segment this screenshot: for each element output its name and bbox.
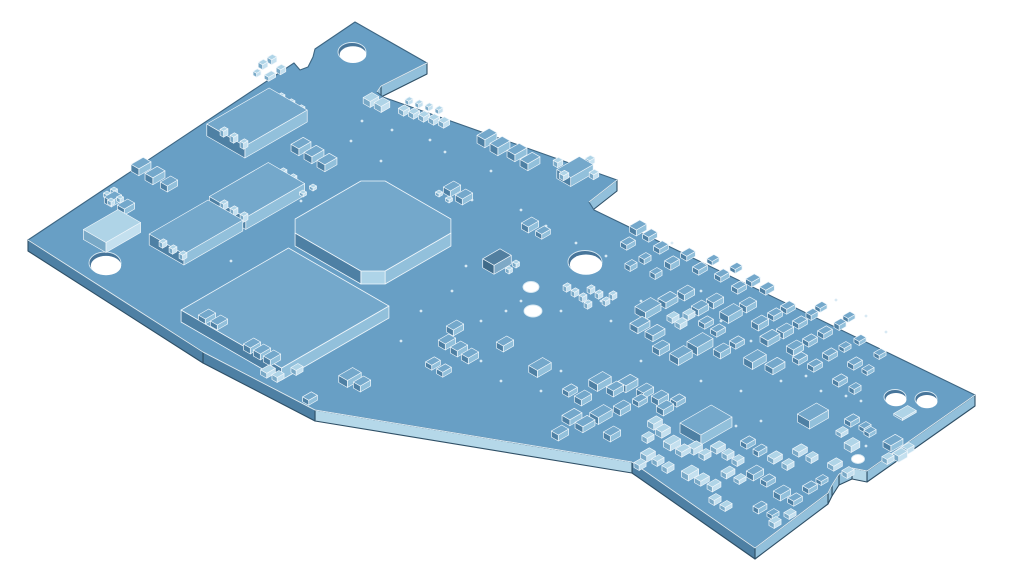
smd-component xyxy=(300,190,307,197)
smd-component xyxy=(425,103,433,111)
smd-component xyxy=(446,196,453,203)
smd-component xyxy=(258,59,268,69)
smd-component xyxy=(760,282,775,295)
pcb-3d-viewport[interactable] xyxy=(0,0,1027,577)
small-hole xyxy=(852,455,865,464)
smd-component xyxy=(834,319,846,331)
smd-component xyxy=(435,106,443,114)
smd-component xyxy=(506,266,513,274)
smd-component xyxy=(415,100,423,108)
smd-component xyxy=(707,255,719,266)
smd-component xyxy=(436,190,443,197)
pcb-render xyxy=(0,0,1027,577)
smd-component xyxy=(253,69,261,77)
smd-component xyxy=(746,274,761,287)
smd-component xyxy=(220,127,228,137)
small-hole xyxy=(524,305,542,317)
smd-component xyxy=(240,139,248,149)
smd-component xyxy=(405,97,413,105)
smd-component xyxy=(730,263,742,274)
small-hole xyxy=(523,282,539,293)
smd-component xyxy=(230,133,238,143)
pcb-board xyxy=(28,22,975,559)
smd-component xyxy=(513,260,520,268)
smd-component xyxy=(108,198,115,206)
smd-component xyxy=(267,54,277,64)
smd-component xyxy=(310,184,317,191)
